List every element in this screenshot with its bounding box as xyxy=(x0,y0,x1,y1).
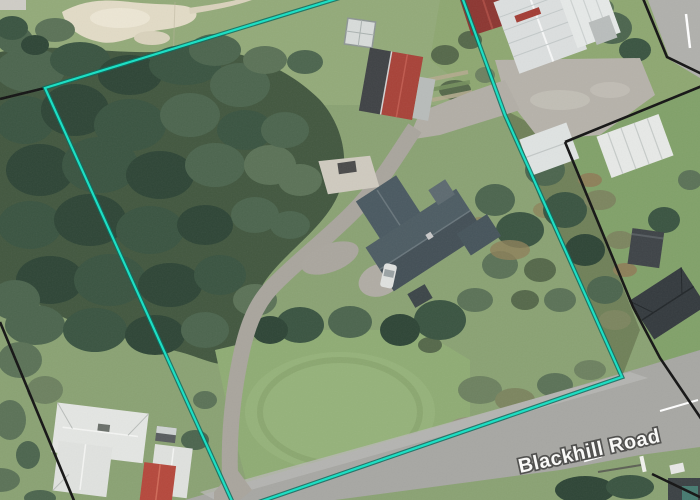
aerial-map-view[interactable]: Blackhill Road xyxy=(0,0,700,500)
map-canvas[interactable]: Blackhill Road xyxy=(0,0,700,500)
photo-grain xyxy=(0,0,700,500)
